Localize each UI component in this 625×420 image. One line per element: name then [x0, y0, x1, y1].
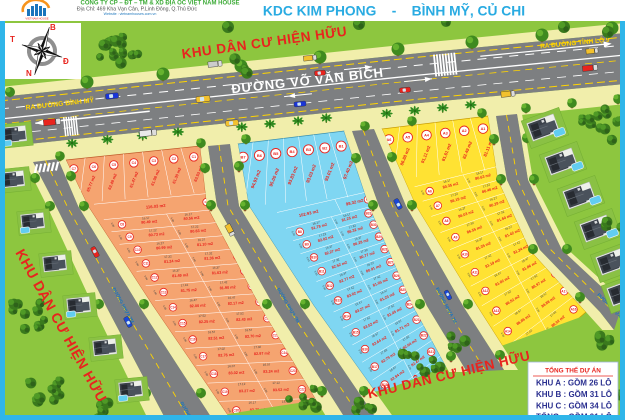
svg-text:16.17: 16.17: [142, 216, 150, 221]
svg-text:B29: B29: [376, 235, 382, 239]
svg-text:C20: C20: [233, 409, 239, 413]
svg-text:83.27 m2: 83.27 m2: [239, 389, 255, 394]
svg-text:17.42: 17.42: [220, 280, 228, 285]
svg-text:B28: B28: [382, 247, 388, 251]
svg-text:B3: B3: [306, 147, 312, 152]
svg-text:C22: C22: [299, 388, 305, 392]
svg-text:17.02: 17.02: [217, 347, 225, 351]
svg-text:A1: A1: [481, 127, 486, 131]
svg-text:16.17: 16.17: [248, 401, 256, 405]
svg-text:17.32: 17.32: [164, 254, 172, 259]
svg-text:82.76 m2: 82.76 m2: [218, 353, 234, 358]
svg-text:B2: B2: [322, 145, 328, 150]
svg-text:C8: C8: [120, 223, 124, 227]
svg-text:Đ: Đ: [63, 57, 69, 66]
svg-text:B7: B7: [241, 155, 247, 160]
svg-text:B17: B17: [372, 365, 378, 369]
svg-text:B14: B14: [344, 314, 350, 318]
svg-text:C19: C19: [222, 390, 228, 394]
svg-text:B15: B15: [353, 331, 359, 335]
svg-text:B10: B10: [311, 256, 317, 260]
svg-text:B9: B9: [305, 243, 309, 247]
svg-text:B11: B11: [319, 269, 325, 273]
svg-text:16.37: 16.37: [212, 265, 220, 270]
svg-text:A9: A9: [453, 235, 457, 239]
svg-text:82.51 m2: 82.51 m2: [208, 336, 224, 341]
svg-text:C4: C4: [132, 161, 136, 165]
svg-text:82.70 m2: 82.70 m2: [245, 334, 261, 339]
svg-text:C24: C24: [281, 351, 287, 355]
svg-text:KDC KIM PHONG - BÌNH MỸ,: KDC KIM PHONG - BÌNH MỸ, CỦ CHI: [263, 2, 525, 19]
svg-text:C18: C18: [211, 372, 217, 376]
svg-text:C9: C9: [128, 235, 132, 239]
svg-text:16.07: 16.07: [263, 363, 271, 367]
svg-text:C1: C1: [192, 155, 196, 159]
svg-text:TỔNG THỂ DỰ ÁN: TỔNG THỂ DỰ ÁN: [545, 366, 601, 375]
svg-text:17.22: 17.22: [191, 224, 199, 229]
svg-text:B8: B8: [298, 230, 302, 234]
svg-text:16.27: 16.27: [156, 241, 164, 246]
svg-text:B6: B6: [257, 153, 263, 158]
svg-text:16.17: 16.17: [184, 212, 192, 217]
svg-text:T: T: [10, 35, 15, 44]
svg-text:17.32: 17.32: [205, 251, 213, 256]
svg-text:A14: A14: [505, 329, 511, 333]
svg-text:B23: B23: [414, 318, 420, 322]
svg-text:B31: B31: [365, 212, 371, 216]
svg-text:A12: A12: [482, 289, 488, 293]
svg-text:83.02 m2: 83.02 m2: [228, 371, 244, 376]
svg-text:C11: C11: [143, 262, 149, 266]
svg-text:A10: A10: [462, 252, 468, 256]
svg-text:C12: C12: [152, 276, 158, 280]
svg-text:C14: C14: [170, 306, 176, 310]
svg-text:B26: B26: [394, 274, 400, 278]
svg-text:A6: A6: [428, 189, 432, 193]
svg-text:A13: A13: [493, 309, 499, 313]
svg-text:B12: B12: [327, 284, 333, 288]
svg-text:B25: B25: [400, 288, 406, 292]
svg-text:C3: C3: [152, 159, 156, 163]
svg-text:16.37: 16.37: [172, 268, 180, 273]
svg-text:17.12: 17.12: [272, 381, 280, 385]
svg-text:C5: C5: [112, 163, 116, 167]
svg-text:17.12: 17.12: [238, 382, 246, 386]
svg-text:C7: C7: [72, 167, 76, 171]
svg-text:A3: A3: [443, 131, 448, 135]
svg-text:16.57: 16.57: [245, 328, 253, 332]
svg-text:16.27: 16.27: [198, 237, 206, 242]
svg-text:A2: A2: [462, 129, 467, 133]
svg-text:B5: B5: [273, 151, 279, 156]
svg-text:C16: C16: [190, 338, 196, 342]
svg-text:C23: C23: [290, 369, 296, 373]
svg-text:C13: C13: [161, 290, 167, 294]
svg-text:VIETNAM HOUSE: VIETNAM HOUSE: [25, 17, 48, 21]
svg-text:B: B: [50, 23, 56, 32]
svg-text:A7: A7: [436, 204, 440, 208]
svg-text:16.07: 16.07: [227, 364, 235, 368]
svg-text:A5: A5: [405, 136, 410, 140]
svg-text:A8: A8: [444, 219, 448, 223]
svg-text:17.52: 17.52: [236, 311, 244, 315]
svg-text:A11: A11: [472, 270, 478, 274]
svg-text:16.47: 16.47: [189, 298, 197, 302]
svg-text:B22: B22: [421, 334, 427, 338]
svg-text:N: N: [26, 69, 32, 78]
svg-text:KHU B : GỒM 31 LÔ: KHU B : GỒM 31 LÔ: [536, 389, 612, 399]
svg-text:83.24 m2: 83.24 m2: [263, 369, 279, 374]
svg-text:C15: C15: [180, 321, 186, 325]
svg-text:82.97 m2: 82.97 m2: [254, 351, 270, 356]
svg-text:KHU A : GỒM 26 LÔ: KHU A : GỒM 26 LÔ: [536, 378, 611, 388]
svg-text:83.52 m2: 83.52 m2: [273, 388, 289, 393]
svg-text:Website : vietnamhouses.com.vn: Website : vietnamhouses.com.vn: [104, 12, 157, 16]
svg-text:B16: B16: [362, 347, 368, 351]
svg-text:C6: C6: [92, 165, 96, 169]
svg-text:B13: B13: [335, 299, 341, 303]
svg-text:B4: B4: [290, 149, 296, 154]
svg-text:C10: C10: [135, 248, 141, 252]
svg-text:C17: C17: [200, 355, 206, 359]
svg-text:16.57: 16.57: [208, 330, 216, 334]
svg-text:16.47: 16.47: [228, 295, 236, 299]
svg-text:A16: A16: [571, 308, 577, 312]
svg-text:C2: C2: [172, 157, 176, 161]
svg-text:B27: B27: [388, 260, 394, 264]
svg-text:B21: B21: [428, 350, 434, 354]
svg-text:B30: B30: [371, 223, 377, 227]
svg-text:17.42: 17.42: [181, 283, 189, 288]
svg-text:17.52: 17.52: [198, 314, 206, 318]
svg-text:B1: B1: [339, 144, 345, 149]
svg-text:17.22: 17.22: [149, 228, 157, 233]
svg-text:17.02: 17.02: [254, 345, 262, 349]
svg-text:KHU C : GỒM 34 LÔ: KHU C : GỒM 34 LÔ: [536, 401, 612, 411]
